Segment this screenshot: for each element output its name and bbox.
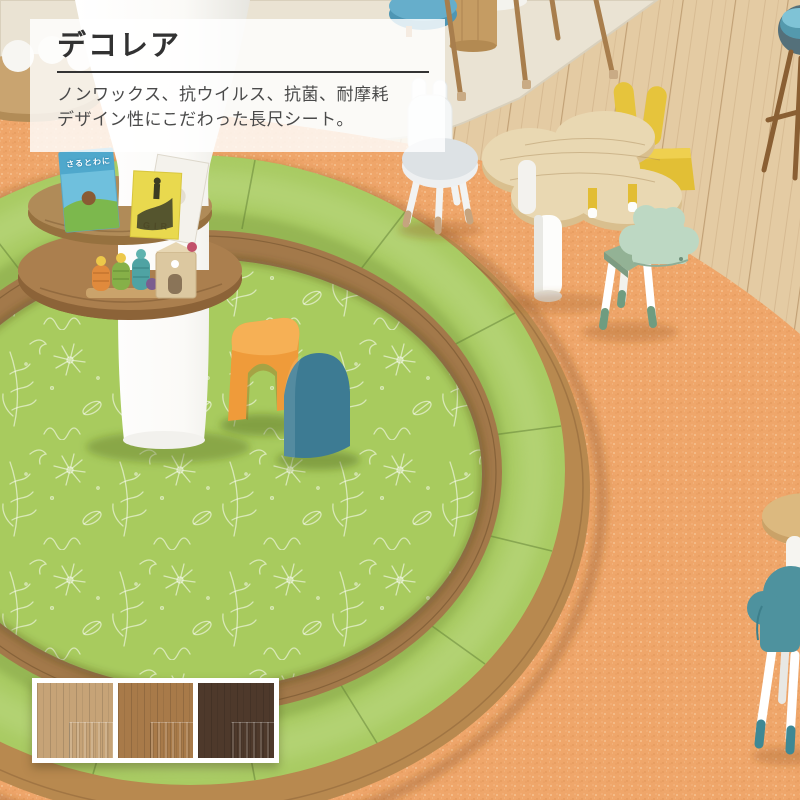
arch-cushion-teal [284, 353, 350, 458]
product-banner: デコレア ノンワックス、抗ウイルス、抗菌、耐摩耗 デザイン性にこだわった長尺シー… [0, 0, 800, 800]
description-line-2: デザイン性にこだわった長尺シート。 [57, 110, 354, 129]
description-line-1: ノンワックス、抗ウイルス、抗菌、耐摩耗 [57, 85, 389, 104]
product-description: ノンワックス、抗ウイルス、抗菌、耐摩耗 デザイン性にこだわった長尺シート。 [57, 82, 445, 133]
picture-book-blue [59, 148, 120, 232]
swatch-wood-medium [118, 683, 194, 758]
picture-book-yellow [130, 171, 181, 239]
swatch-wood-dark [198, 683, 274, 758]
product-info-panel: デコレア ノンワックス、抗ウイルス、抗菌、耐摩耗 デザイン性にこだわった長尺シー… [30, 19, 445, 152]
title-divider [57, 71, 429, 73]
product-title: デコレア [57, 29, 445, 64]
toy-house [156, 242, 197, 298]
swatch-wood-light [37, 683, 113, 758]
wood-swatch-panel [32, 678, 279, 763]
